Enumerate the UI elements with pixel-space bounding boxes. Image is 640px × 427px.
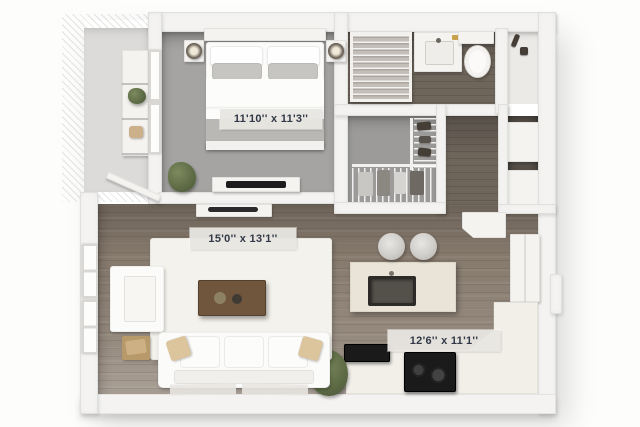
coffee-table-decor-1 xyxy=(214,292,226,304)
wall-bathroom-bottom xyxy=(334,104,508,116)
floor-plan: 11'10'' x 11'3'' 15'0'' x 13'1'' 12'6'' … xyxy=(0,0,640,427)
bedroom-window xyxy=(149,50,161,154)
toilet-tank xyxy=(458,31,494,44)
sofa-cushion-2 xyxy=(224,336,264,368)
balcony-pot xyxy=(129,126,143,138)
coffee-table-decor-2 xyxy=(232,294,242,304)
wall-right-bump xyxy=(550,274,562,314)
closet-clothes-dark-3 xyxy=(418,147,432,156)
bedroom-dimensions-label: 11'10'' x 11'3'' xyxy=(220,109,322,129)
wall-bottom xyxy=(80,394,556,414)
stove-cooktop-icon xyxy=(404,352,456,392)
bar-stool-right xyxy=(410,233,437,260)
wall-laundry-left xyxy=(498,104,508,214)
washer-icon xyxy=(506,122,539,162)
kitchen-dimensions-label: 12'6'' x 11'1'' xyxy=(388,330,500,351)
closet-clothes-hanging-3 xyxy=(394,172,406,194)
closet-clothes-hanging-4 xyxy=(410,171,424,195)
lamp-left-icon xyxy=(186,43,202,59)
vanity-faucet-icon xyxy=(436,38,441,43)
sofa-back xyxy=(174,370,314,384)
bed-headboard xyxy=(204,28,326,41)
shower xyxy=(350,32,412,102)
closet-clothes-hanging-1 xyxy=(358,172,373,196)
living-room-dimensions-label: 15'0'' x 13'1'' xyxy=(190,228,296,249)
wall-closet-bottom xyxy=(334,202,446,214)
floor-mat-right xyxy=(242,383,308,395)
wall-closet-right xyxy=(436,104,446,214)
side-table-book-top xyxy=(125,339,147,356)
refrigerator xyxy=(510,234,540,302)
closet-clothes-dark-1 xyxy=(417,121,432,130)
wall-bathroom-right xyxy=(495,28,508,114)
kitchen-sink-appliance xyxy=(344,344,390,362)
balcony-plant-icon xyxy=(128,88,146,104)
lamp-right-icon xyxy=(328,43,344,59)
wall-bedroom-bottom xyxy=(158,192,340,204)
closet-clothes-dark-2 xyxy=(419,136,431,143)
closet-rail-right xyxy=(410,118,413,170)
bed-foot-fold xyxy=(206,141,324,150)
vanity-sink-icon xyxy=(425,41,454,65)
armchair-cushion xyxy=(124,276,156,322)
dryer-icon xyxy=(506,170,539,206)
closet-clothes-hanging-2 xyxy=(377,170,390,196)
bedroom-tv-icon xyxy=(226,181,286,188)
hallway-floor xyxy=(446,116,498,204)
bed-pillow-gray-left xyxy=(212,63,262,80)
island-faucet-icon xyxy=(389,271,394,276)
island-sink-icon xyxy=(368,276,416,306)
wall-laundry-bottom xyxy=(498,204,556,214)
living-tv-icon xyxy=(208,207,258,212)
living-window-upper xyxy=(82,244,98,298)
living-window-lower xyxy=(82,300,98,354)
entry-door-hardware-icon xyxy=(520,47,528,55)
toilet-bowl-icon xyxy=(464,45,491,78)
bedroom-plant-icon xyxy=(168,162,196,192)
bar-stool-left xyxy=(378,233,405,260)
floor-mat-left xyxy=(170,383,236,395)
bed-pillow-gray-right xyxy=(268,63,318,80)
